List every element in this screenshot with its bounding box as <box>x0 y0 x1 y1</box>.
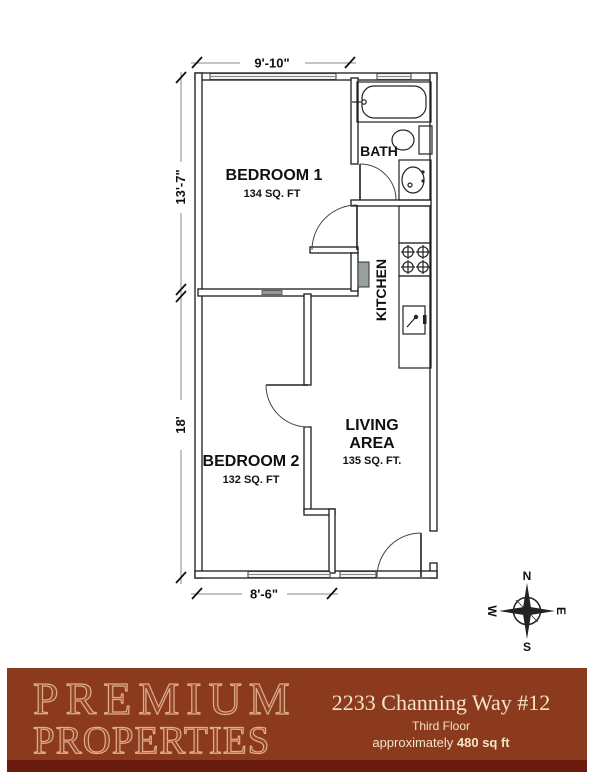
brand-line2: PROPERTIES <box>33 721 297 761</box>
floor-plan-page: BEDROOM 1 134 SQ. FT BATH KITCHEN BEDROO… <box>0 0 600 776</box>
brand-logo: PREMIUM PROPERTIES <box>33 677 297 761</box>
dim-left-lower-text: 18' <box>173 416 188 434</box>
living-label-line1: LIVING <box>345 417 398 434</box>
dim-left-upper-text: 13'-7" <box>173 169 188 204</box>
dim-bottom-text: 8'-6" <box>250 587 278 602</box>
bath-door <box>360 164 396 200</box>
bedroom1-label: BEDROOM 1 <box>226 167 323 184</box>
kitchen-counter <box>399 206 431 368</box>
window-living-bottom <box>340 572 376 578</box>
wall-vent <box>262 291 282 295</box>
property-area: approximately 480 sq ft <box>321 735 561 750</box>
bath-label: BATH <box>360 143 398 159</box>
floor-plan-drawing: BEDROOM 1 134 SQ. FT BATH KITCHEN BEDROO… <box>0 0 600 660</box>
kitchen-label: KITCHEN <box>373 259 389 321</box>
dimension-top: 9'-10" <box>191 56 356 71</box>
living-area: 135 SQ. FT. <box>343 455 402 467</box>
bedroom1-door <box>312 205 357 250</box>
property-address: 2233 Channing Way #12 <box>321 690 561 716</box>
area-value: 480 sq ft <box>457 735 510 750</box>
property-info: 2233 Channing Way #12 Third Floor approx… <box>321 690 561 750</box>
bath-sink <box>399 160 431 200</box>
kitchen-sink <box>403 306 427 334</box>
compass-south-label: S <box>523 640 531 654</box>
doors <box>266 164 421 577</box>
walls <box>195 73 437 578</box>
window-bath-top <box>377 74 411 80</box>
dimension-left: 13'-7" 18' <box>173 72 188 584</box>
compass-rose: N S W E <box>485 569 568 654</box>
toilet <box>392 126 432 154</box>
dim-top-text: 9'-10" <box>254 56 289 71</box>
stove <box>399 243 431 276</box>
dimension-bottom: 8'-6" <box>191 587 338 602</box>
approx-label: approximately <box>372 735 457 750</box>
living-label-line2: AREA <box>349 435 395 452</box>
water-heater <box>358 262 369 287</box>
bathtub <box>352 82 431 122</box>
property-floor: Third Floor <box>321 719 561 733</box>
bedroom2-label: BEDROOM 2 <box>203 453 300 470</box>
compass-north-label: N <box>523 569 532 583</box>
bedroom2-area: 132 SQ. FT <box>223 474 280 486</box>
bedroom1-area: 134 SQ. FT <box>244 188 301 200</box>
bedroom2-door <box>266 385 308 427</box>
footer-banner: PREMIUM PROPERTIES 2233 Channing Way #12… <box>7 668 587 772</box>
compass-east-label: E <box>554 607 568 615</box>
window-bedroom1-top <box>210 74 336 80</box>
brand-line1: PREMIUM <box>33 677 297 721</box>
compass-west-label: W <box>485 605 499 617</box>
window-bedroom2-bottom <box>248 572 330 578</box>
